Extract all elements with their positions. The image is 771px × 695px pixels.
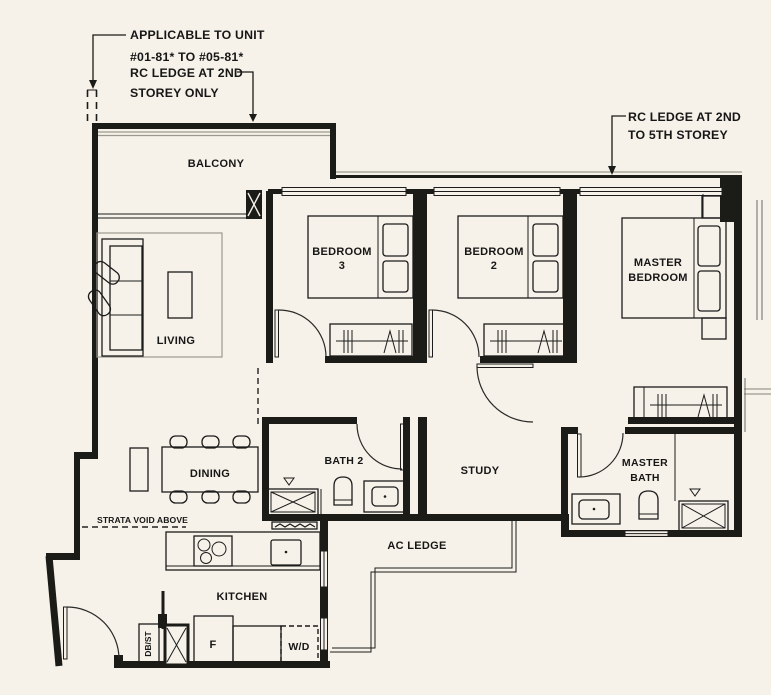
- annotation-rc-ledge-2nd-5th-line2: TO 5TH STOREY: [628, 128, 728, 142]
- wardrobe-master: [634, 387, 727, 421]
- arrow-icon: [249, 114, 257, 122]
- floor-plan-svg: BALCONY LIVING DINING BEDROOM 3 BEDROOM …: [0, 0, 771, 695]
- vent-strip: [272, 522, 317, 529]
- living-area: [86, 233, 222, 357]
- sink-bath2: [364, 481, 406, 512]
- room-label-bedroom2-line2: 2: [491, 260, 497, 272]
- room-label-bedroom3-line1: BEDROOM: [312, 246, 372, 258]
- room-label-bedroom2-line1: BEDROOM: [464, 246, 524, 258]
- room-label-study: STUDY: [461, 465, 500, 477]
- shower-bath2: [268, 478, 321, 516]
- bath2-fixtures: [268, 477, 406, 516]
- annotation-rc-ledge-2nd-line1: RC LEDGE AT 2ND: [130, 66, 243, 80]
- room-label-bedroom3-line2: 3: [339, 260, 345, 272]
- toilet-bath2: [334, 477, 352, 505]
- shaft-box: [165, 625, 188, 665]
- shower-master-bath: [679, 489, 728, 531]
- cooktop: [194, 536, 232, 566]
- annotation-applicable-unit-line1: APPLICABLE TO UNIT: [130, 28, 265, 42]
- counter-block: [233, 626, 281, 663]
- annotation-rc-ledge-2nd-5th: RC LEDGE AT 2ND TO 5TH STOREY: [608, 110, 741, 175]
- label-db-st: DB/ST: [143, 631, 153, 657]
- arrow-icon: [89, 80, 97, 89]
- annotation-rc-ledge-2nd-5th-line1: RC LEDGE AT 2ND: [628, 110, 741, 124]
- chair: [170, 491, 187, 503]
- balcony-rail: [98, 214, 246, 218]
- wardrobe-bedroom2: [484, 324, 566, 356]
- kitchen-counter: [166, 532, 320, 570]
- room-label-master-bath-line1: MASTER: [622, 457, 668, 469]
- toilet-master-bath: [639, 491, 658, 519]
- chair: [202, 436, 219, 448]
- window-kitchen-1: [321, 551, 328, 587]
- chair: [233, 491, 250, 503]
- door-study: [477, 364, 533, 422]
- annotation-rc-ledge-2nd: RC LEDGE AT 2ND STOREY ONLY: [130, 66, 257, 122]
- label-washer-dryer: W/D: [288, 641, 309, 653]
- room-label-ac-ledge: AC LEDGE: [387, 540, 446, 552]
- sink-master-bath: [572, 494, 620, 524]
- sideboard: [130, 448, 148, 491]
- annotation-rc-ledge-2nd-line2: STOREY ONLY: [130, 86, 219, 100]
- room-label-kitchen: KITCHEN: [217, 591, 268, 603]
- room-label-master-bath-line2: BATH: [630, 472, 660, 484]
- floor-plan: BALCONY LIVING DINING BEDROOM 3 BEDROOM …: [0, 0, 771, 695]
- room-label-balcony: BALCONY: [188, 158, 245, 170]
- window-bedroom2: [434, 188, 560, 196]
- room-label-bath2: BATH 2: [325, 455, 364, 467]
- label-fridge: F: [209, 639, 216, 651]
- room-label-living: LIVING: [157, 335, 195, 347]
- window-bedroom3: [282, 188, 406, 196]
- window-kitchen-2: [321, 618, 328, 650]
- annotation-applicable-unit-line2: #01-81* TO #05-81*: [130, 50, 243, 64]
- door-bedroom3: [275, 310, 326, 357]
- door-bath2: [357, 424, 404, 470]
- door-bedroom2: [429, 310, 479, 357]
- bedroom3-furniture: [308, 216, 413, 356]
- master-bedroom-furniture: [622, 194, 727, 421]
- window-master-bedroom: [580, 188, 722, 196]
- coffee-table: [168, 272, 192, 318]
- room-label-master-line2: BEDROOM: [628, 272, 688, 284]
- structural-column: [246, 190, 262, 219]
- room-label-master-line1: MASTER: [634, 257, 682, 269]
- kitchen-sink: [271, 540, 301, 565]
- wardrobe-bedroom3: [330, 324, 412, 356]
- window-master-bath: [625, 531, 668, 537]
- chair: [202, 491, 219, 503]
- room-label-dining: DINING: [190, 468, 230, 480]
- chair: [233, 436, 250, 448]
- walls: [46, 123, 742, 668]
- door-master-bath: [578, 433, 624, 477]
- arrow-icon: [608, 166, 616, 175]
- entrance-door: [64, 607, 120, 659]
- label-strata-void: STRATA VOID ABOVE: [97, 515, 188, 525]
- bedside-table: [702, 318, 726, 339]
- dashed-wall-applicable: [87, 90, 97, 123]
- chair: [170, 436, 187, 448]
